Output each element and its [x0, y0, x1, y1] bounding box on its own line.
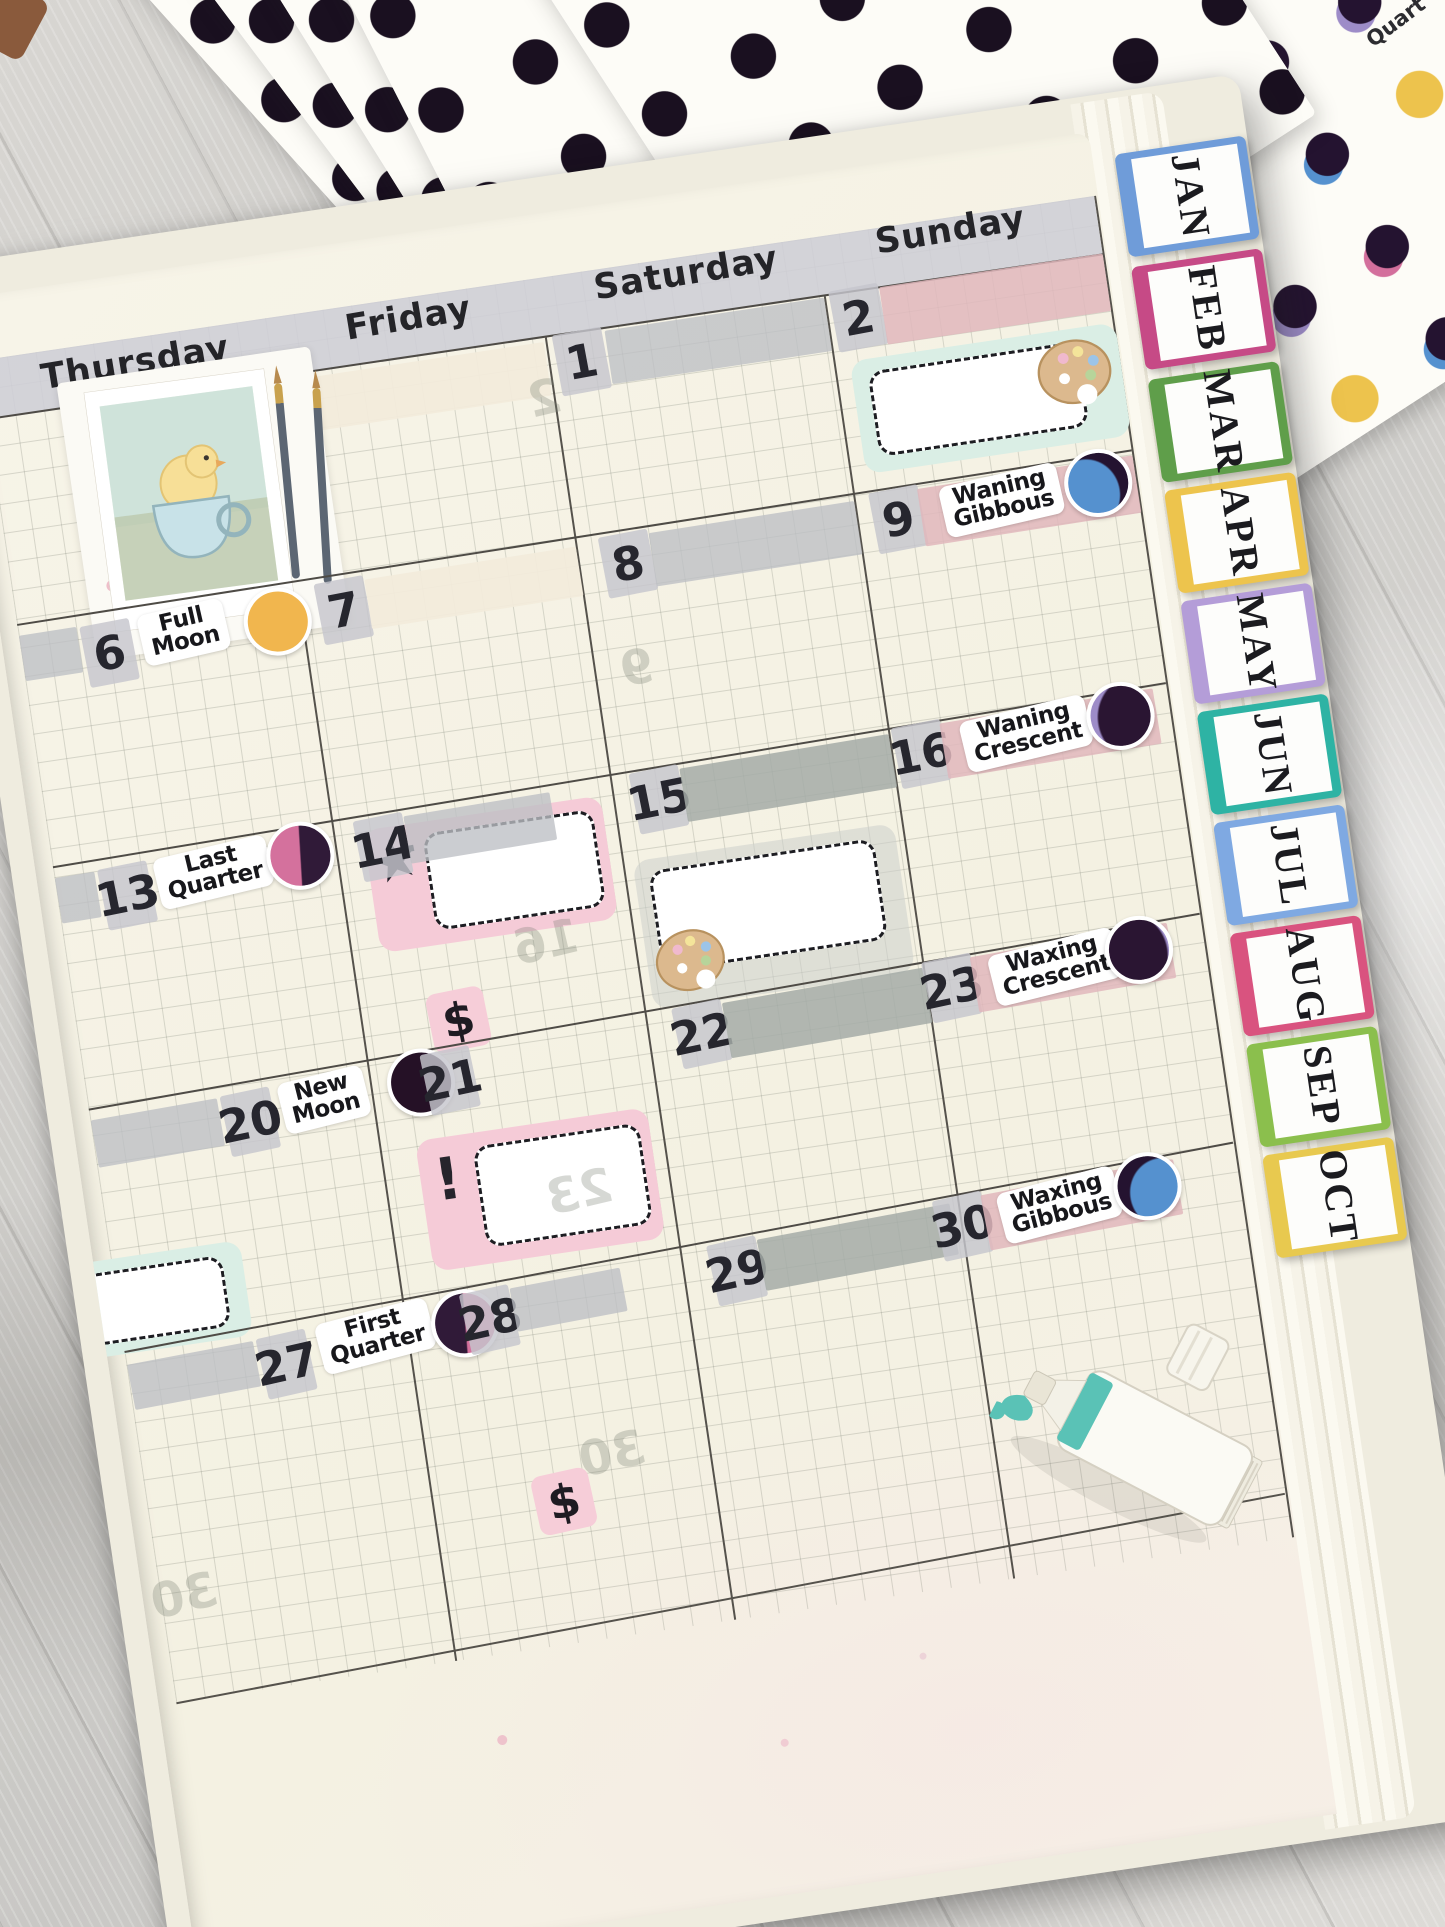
paint-splat	[497, 1734, 508, 1745]
tab-color-jul: JUL	[1213, 804, 1359, 926]
month-tab-jul: JUL	[1213, 804, 1359, 926]
washi-strip	[19, 627, 83, 681]
tab-color-apr: APR	[1164, 472, 1310, 594]
tab-label-jan: JAN	[1164, 150, 1216, 242]
tab-color-sep: SEP	[1246, 1026, 1392, 1148]
month-tab-jan: JAN	[1114, 135, 1260, 257]
photo-scene: Quart JAN FEB MAR APR MAY JUN	[0, 0, 1445, 1927]
washi-strip	[127, 1341, 261, 1410]
tab-label-oct: OCT	[1312, 1147, 1366, 1248]
tab-color-aug: AUG	[1229, 915, 1375, 1037]
day-header-sunday: Sunday	[873, 201, 1028, 260]
month-tab-apr: APR	[1164, 472, 1310, 594]
paint-palette-sticker	[1031, 331, 1118, 412]
tab-color-oct: OCT	[1262, 1136, 1408, 1258]
day-header-friday: Friday	[343, 291, 474, 346]
date-sticker-21: 21	[419, 1045, 481, 1116]
date-sticker-6: 6	[79, 618, 140, 688]
tab-label-apr: APR	[1214, 484, 1267, 580]
tab-label-feb: FEB	[1181, 263, 1233, 355]
tab-color-mar: MAR	[1148, 361, 1294, 483]
date-sticker-20: 20	[219, 1086, 281, 1157]
exclamation-icon: !	[430, 1143, 466, 1214]
tab-color-may: MAY	[1180, 582, 1326, 704]
planner-book: JAN FEB MAR APR MAY JUN JUL AUG SEP	[0, 74, 1445, 1927]
tab-label-aug: AUG	[1279, 924, 1333, 1027]
tab-color-feb: FEB	[1131, 248, 1277, 370]
corner-object	[0, 0, 50, 62]
date-sticker-13: 13	[97, 860, 158, 931]
tab-color-jun: JUN	[1197, 693, 1343, 815]
moon-label-new-moon: NewMoon	[276, 1064, 373, 1135]
month-tab-feb: FEB	[1131, 248, 1277, 370]
month-tab-mar: MAR	[1148, 361, 1294, 483]
tab-color-jan: JAN	[1114, 135, 1260, 257]
month-tab-sep: SEP	[1246, 1026, 1392, 1148]
tab-label-sep: SEP	[1296, 1043, 1348, 1130]
month-tab-may: MAY	[1180, 582, 1326, 704]
paint-splat	[780, 1738, 789, 1747]
moon-label-full-moon: FullMoon	[136, 597, 232, 667]
washi-strip	[91, 1098, 225, 1167]
day-header-saturday: Saturday	[591, 241, 780, 306]
month-tab-oct: OCT	[1262, 1136, 1408, 1258]
date-sticker-27: 27	[255, 1328, 317, 1399]
month-tab-jun: JUN	[1197, 693, 1343, 815]
tab-label-jun: JUN	[1247, 708, 1299, 800]
month-tab-aug: AUG	[1229, 915, 1375, 1037]
date-sticker-1: 1	[552, 326, 613, 396]
paint-splat	[919, 1652, 927, 1660]
tab-label-mar: MAR	[1196, 367, 1251, 476]
tab-label-may: MAY	[1229, 590, 1283, 696]
moon-sticker-full-moon	[239, 583, 317, 661]
washi-strip	[509, 1268, 627, 1332]
tab-label-jul: JUL	[1263, 820, 1315, 910]
